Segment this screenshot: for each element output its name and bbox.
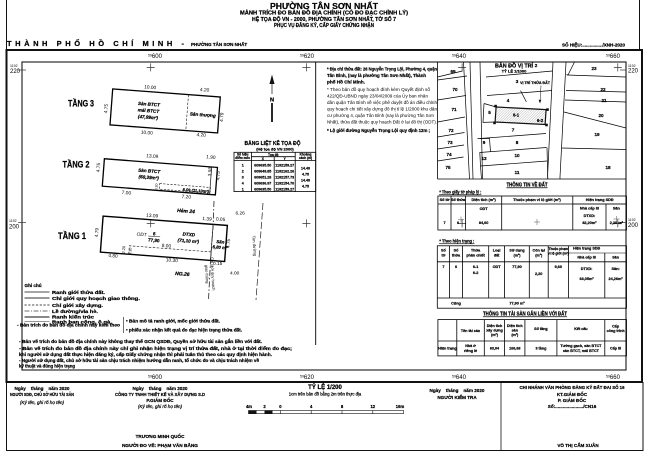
svg-text:Thuộc phạm: Thuộc phạm bbox=[548, 247, 568, 251]
svg-text:ODT: ODT bbox=[136, 232, 148, 239]
svg-text:7: 7 bbox=[442, 265, 444, 269]
svg-text:ODT: ODT bbox=[480, 207, 489, 211]
svg-text:609635.50: 609635.50 bbox=[254, 163, 271, 167]
svg-text:(m²): (m²) bbox=[511, 333, 519, 337]
svg-text:4.20: 4.20 bbox=[200, 87, 210, 94]
svg-text:7.00: 7.00 bbox=[122, 190, 132, 197]
svg-text:phố Hồ Chí Minh.: phố Hồ Chí Minh. bbox=[327, 79, 365, 85]
svg-text:6-2: 6-2 bbox=[537, 118, 544, 123]
svg-text:77,90: 77,90 bbox=[148, 237, 160, 243]
svg-text:DTXD:: DTXD: bbox=[581, 267, 593, 271]
svg-text:16m: 16m bbox=[396, 404, 405, 409]
svg-text:Hiện trạng SDĐ: Hiện trạng SDĐ bbox=[573, 247, 600, 251]
svg-text:* Theo giấy tờ pháp lý :: * Theo giấy tờ pháp lý : bbox=[439, 189, 481, 195]
svg-text:CÔNG TY TNHH THIẾT KẾ VÀ XÂY D: CÔNG TY TNHH THIẾT KẾ VÀ XÂY DỰNG S.D bbox=[115, 390, 206, 397]
svg-text:Diện tích: Diện tích bbox=[487, 324, 503, 328]
svg-text:- Bản vẽ trích đo bản đồ địa c: - Bản vẽ trích đo bản đồ địa chính này k… bbox=[19, 339, 262, 344]
svg-text:Lề đường/vỉa hè.: Lề đường/vỉa hè. bbox=[52, 309, 98, 314]
svg-text:Sử dụng: Sử dụng bbox=[509, 249, 524, 253]
svg-text:200: 200 bbox=[628, 223, 639, 229]
svg-text:63,05m²: 63,05m² bbox=[580, 277, 595, 281]
svg-text:VỊ TRÍ THỬA ĐẤT: VỊ TRÍ THỬA ĐẤT bbox=[520, 80, 551, 85]
svg-text:10.00: 10.00 bbox=[141, 130, 154, 137]
svg-text:73: 73 bbox=[447, 140, 453, 145]
svg-text:Thuộc phạm vi lộ giới (m²): Thuộc phạm vi lộ giới (m²) bbox=[513, 198, 561, 202]
svg-text:TẦNG 3: TẦNG 3 bbox=[68, 99, 94, 110]
svg-text:cư phường 4, quận Tân Bình (na: cư phường 4, quận Tân Bình (nay là phườn… bbox=[327, 113, 434, 118]
svg-text:7: 7 bbox=[512, 128, 515, 133]
svg-text:Diện tích: Diện tích bbox=[507, 324, 523, 328]
svg-text:TỶ LỆ 1/1000: TỶ LỆ 1/1000 bbox=[502, 69, 527, 74]
svg-text:(m²): (m²) bbox=[535, 254, 543, 258]
svg-text:4.20: 4.20 bbox=[196, 132, 206, 139]
svg-text:69: 69 bbox=[450, 69, 456, 74]
svg-text:Chỉ giới xây dựng.: Chỉ giới xây dựng. bbox=[52, 303, 103, 308]
svg-text:2: 2 bbox=[242, 169, 244, 173]
svg-text:Tọa độ: Tọa độ bbox=[268, 153, 278, 157]
svg-text:8: 8 bbox=[516, 140, 519, 145]
svg-text:- Bản trích đo bản đồ địa chín: - Bản trích đo bản đồ địa chính này kèm … bbox=[17, 323, 120, 328]
svg-text:- Bản vẽ trích đo bản đồ địa c: - Bản vẽ trích đo bản đồ địa chính này c… bbox=[19, 346, 293, 351]
svg-text:11: 11 bbox=[515, 170, 520, 175]
svg-text:* Địa chỉ thửa đất: 26 Nguyễn: * Địa chỉ thửa đất: 26 Nguyễn Trọng Lội,… bbox=[327, 66, 437, 72]
svg-text:14.49: 14.49 bbox=[301, 178, 310, 182]
svg-text:phân chiết: phân chiết bbox=[466, 254, 485, 258]
svg-text:Nhất), thửa đất thuộc quy hoạc: Nhất), thửa đất thuộc quy hoạch Đất ở lạ… bbox=[327, 119, 437, 125]
svg-text:NG.26: NG.26 bbox=[175, 271, 190, 278]
svg-text:* Theo bản đồ quy hoạch đính k: * Theo bản đồ quy hoạch đính kèm Quyết đ… bbox=[327, 87, 431, 92]
svg-text:(Ký tên, ghi rõ họ tên): (Ký tên, ghi rõ họ tên) bbox=[20, 400, 65, 405]
svg-text:10: 10 bbox=[514, 153, 520, 158]
svg-text:Cấp III: Cấp III bbox=[610, 347, 621, 351]
svg-text:3: 3 bbox=[516, 79, 519, 84]
svg-text:sàn BTCT, mái BTCT: sàn BTCT, mái BTCT bbox=[563, 349, 600, 353]
svg-text:Cấp: Cấp bbox=[612, 325, 620, 329]
svg-text:18: 18 bbox=[605, 165, 611, 170]
svg-text:2,20: 2,20 bbox=[535, 272, 542, 276]
svg-text:SỐ HIỆU:................/XNH-2: SỐ HIỆU:................/XNH-2020 bbox=[562, 41, 625, 48]
svg-text:Hiện trạng: Hiện trạng bbox=[438, 347, 456, 351]
svg-text:Nhà ở: Nhà ở bbox=[465, 344, 476, 348]
svg-text:82,20m²: 82,20m² bbox=[582, 221, 597, 225]
svg-text:sàn: sàn bbox=[512, 329, 519, 333]
svg-text:Thửa: Thửa bbox=[471, 249, 481, 253]
svg-text:Chỉ giới quy hoạch giao thông.: Chỉ giới quy hoạch giao thông. bbox=[52, 296, 140, 301]
svg-text:MẢNH TRÍCH ĐO BẢN ĐỒ ĐỊA CHÍNH: MẢNH TRÍCH ĐO BẢN ĐỒ ĐỊA CHÍNH (CÓ ĐO ĐẠ… bbox=[240, 9, 408, 17]
svg-text:3.98: 3.98 bbox=[207, 166, 214, 176]
svg-text:Sân:: Sân: bbox=[611, 267, 619, 271]
svg-text:7: 7 bbox=[443, 221, 445, 225]
svg-text:21: 21 bbox=[601, 98, 607, 103]
svg-text:609636.97: 609636.97 bbox=[254, 181, 271, 185]
svg-text:Sân: Sân bbox=[613, 207, 621, 211]
svg-text:Nhà cấp III: Nhà cấp III bbox=[577, 256, 595, 260]
svg-text:1: 1 bbox=[242, 187, 244, 191]
svg-text:THÔNG TIN TÀI SẢN GẮN LIỀN VỚI: THÔNG TIN TÀI SẢN GẮN LIỀN VỚI ĐẤT bbox=[483, 310, 567, 318]
svg-text:Tên tài sản: Tên tài sản bbox=[461, 329, 481, 333]
svg-text:khi người sử dụng đất thực hiệ: khi người sử dụng đất thực hiện đăng ký,… bbox=[19, 352, 272, 357]
svg-text:Cộng: Cộng bbox=[451, 302, 461, 306]
svg-text:2.20: 2.20 bbox=[121, 245, 127, 254]
svg-text:19: 19 bbox=[594, 132, 600, 137]
svg-text:8.00: 8.00 bbox=[162, 243, 172, 250]
svg-text:63,04: 63,04 bbox=[490, 347, 500, 351]
svg-text:PHỤC VỤ ĐĂNG KÝ, CẤP GIẤY CHỨN: PHỤC VỤ ĐĂNG KÝ, CẤP GIẤY CHỨNG NHẬN bbox=[274, 22, 374, 29]
svg-text:P. GIÁM ĐỐC: P. GIÁM ĐỐC bbox=[558, 397, 587, 403]
svg-text:• Bản mô tả ranh giới, mốc giớ: • Bản mô tả ranh giới, mốc giới thửa đất… bbox=[126, 319, 220, 324]
svg-text:14.49: 14.49 bbox=[301, 166, 310, 170]
svg-text:* Theo hiện trạng :: * Theo hiện trạng : bbox=[439, 239, 474, 244]
svg-text:4.75: 4.75 bbox=[302, 172, 309, 176]
svg-text:609635.50: 609635.50 bbox=[254, 187, 271, 191]
svg-text:3: 3 bbox=[242, 175, 244, 179]
svg-text:* Lộ giới đường Nguyễn Trọng L: * Lộ giới đường Nguyễn Trọng Lội quy địn… bbox=[327, 127, 430, 133]
svg-text:1192: 1192 bbox=[10, 64, 18, 68]
svg-text:5: 5 bbox=[488, 110, 491, 115]
svg-text:Sân: Sân bbox=[612, 256, 620, 260]
svg-text:Số tầng: Số tầng bbox=[534, 327, 548, 331]
svg-text:1192157.73: 1192157.73 bbox=[275, 175, 294, 179]
svg-text:công trình: công trình bbox=[607, 329, 626, 333]
svg-text:HỆ TỌA ĐỘ VN - 2000, PHƯỜNG TÂ: HỆ TỌA ĐỘ VN - 2000, PHƯỜNG TÂN SƠN NHẤT… bbox=[252, 15, 396, 23]
svg-text:1192162.26: 1192162.26 bbox=[275, 169, 294, 173]
svg-text:N: N bbox=[270, 98, 274, 104]
svg-text:Ngày tháng năm 2020: Ngày tháng năm 2020 bbox=[430, 388, 485, 393]
svg-text:23: 23 bbox=[591, 66, 597, 71]
svg-text:Tường gạch, sàn BTCT: Tường gạch, sàn BTCT bbox=[560, 344, 602, 348]
svg-text:6.26: 6.26 bbox=[236, 211, 246, 217]
svg-text:1192: 1192 bbox=[628, 64, 636, 68]
svg-text:cách (m): cách (m) bbox=[299, 156, 312, 160]
svg-text:vi lộ giới (m²): vi lộ giới (m²) bbox=[548, 252, 569, 256]
svg-text:ODT: ODT bbox=[493, 265, 502, 269]
svg-text:NGƯỜI KIỂM TRA: NGƯỜI KIỂM TRA bbox=[437, 393, 477, 400]
svg-text:4.80: 4.80 bbox=[108, 253, 118, 260]
svg-text:TRƯƠNG MINH QUỐC: TRƯƠNG MINH QUỐC bbox=[136, 433, 185, 439]
svg-text:VÕ THỊ CẨM XUÂN: VÕ THỊ CẨM XUÂN bbox=[557, 442, 599, 448]
svg-text:10.00: 10.00 bbox=[144, 84, 157, 91]
svg-text:1192159.27: 1192159.27 bbox=[275, 187, 294, 191]
svg-text:13.09: 13.09 bbox=[146, 213, 159, 220]
svg-text:PHƯỜNG TÂN SƠN NHẤT: PHƯỜNG TÂN SƠN NHẤT bbox=[191, 40, 247, 47]
svg-text:1192: 1192 bbox=[9, 219, 17, 223]
svg-text:4.00: 4.00 bbox=[230, 271, 240, 277]
svg-text:Tân Bình, (nay là phường Tân S: Tân Bình, (nay là phường Tân Sơn Nhất), … bbox=[327, 72, 426, 78]
svg-text:NGƯỜI ĐO VẼ: PHẠM VĂN BẰNG: NGƯỜI ĐO VẼ: PHẠM VĂN BẰNG bbox=[122, 441, 198, 448]
svg-text:9: 9 bbox=[483, 140, 486, 145]
svg-text:Số:....................../CN16: Số:....................../CN16 bbox=[548, 403, 597, 409]
svg-text:7.20: 7.20 bbox=[181, 194, 191, 201]
svg-text:75: 75 bbox=[445, 165, 451, 170]
svg-text:70: 70 bbox=[452, 87, 458, 92]
svg-text:166,68: 166,68 bbox=[509, 347, 520, 351]
svg-text:riêng lẻ: riêng lẻ bbox=[464, 349, 477, 353]
svg-text:3 tầng: 3 tầng bbox=[535, 347, 546, 351]
svg-text:77,90 m²: 77,90 m² bbox=[509, 302, 525, 306]
svg-text:4: 4 bbox=[242, 181, 244, 185]
svg-text:Số: Số bbox=[454, 249, 459, 253]
svg-text:Ghi chú: Ghi chú bbox=[25, 283, 42, 288]
svg-text:4.75: 4.75 bbox=[225, 238, 232, 248]
svg-text:• phiếu xác nhận kết quả đo đạ: • phiếu xác nhận kết quả đo đạc hiện trạ… bbox=[126, 328, 242, 333]
svg-text:10.30: 10.30 bbox=[166, 257, 179, 264]
svg-text:6-2: 6-2 bbox=[473, 271, 479, 275]
svg-text:Số: Số bbox=[441, 249, 446, 253]
svg-text:609649.85: 609649.85 bbox=[254, 169, 271, 173]
svg-text:Ngày tháng năm 2020: Ngày tháng năm 2020 bbox=[15, 386, 70, 391]
svg-text:đất: đất bbox=[494, 254, 500, 258]
svg-text:20: 20 bbox=[598, 113, 604, 118]
svg-text:NGƯỜI SDĐ, CHỦ SỞ HỮU TÀI SẢN: NGƯỜI SDĐ, CHỦ SỞ HỮU TÀI SẢN bbox=[10, 390, 75, 397]
svg-text:12: 12 bbox=[370, 404, 375, 409]
svg-text:điểm mốc: điểm mốc bbox=[235, 156, 250, 160]
svg-text:1.90: 1.90 bbox=[206, 154, 216, 161]
svg-text:22: 22 bbox=[600, 87, 606, 92]
svg-text:1: 1 bbox=[242, 163, 244, 167]
svg-text:9,60: 9,60 bbox=[555, 265, 562, 269]
svg-text:4.75: 4.75 bbox=[215, 171, 222, 181]
svg-text:6-1: 6-1 bbox=[513, 113, 520, 118]
svg-text:4.75: 4.75 bbox=[103, 103, 110, 113]
svg-text:77,90: 77,90 bbox=[512, 265, 522, 269]
svg-text:24,26m²: 24,26m² bbox=[609, 277, 624, 281]
svg-text:2: 2 bbox=[535, 63, 538, 68]
svg-text:Hiện trạng SDĐ: Hiện trạng SDĐ bbox=[586, 198, 614, 202]
svg-text:TỶ LỆ 1/200: TỶ LỆ 1/200 bbox=[308, 383, 342, 391]
svg-text:0.30: 0.30 bbox=[128, 248, 133, 255]
svg-text:4m: 4m bbox=[246, 404, 252, 409]
svg-text:DTXD: DTXD bbox=[182, 232, 196, 238]
svg-text:1.39: 1.39 bbox=[202, 216, 212, 223]
svg-text:4.75: 4.75 bbox=[95, 162, 102, 172]
svg-text:74: 74 bbox=[446, 152, 452, 157]
svg-text:1192154.70: 1192154.70 bbox=[275, 181, 294, 185]
svg-text:PHƯỜNG TÂN SƠN NHẤT: PHƯỜNG TÂN SƠN NHẤT bbox=[270, 0, 379, 11]
svg-text:KT.GIÁM ĐỐC: KT.GIÁM ĐỐC bbox=[557, 391, 588, 397]
svg-text:0.05: 0.05 bbox=[216, 216, 226, 223]
svg-text:kỹ thuật và đúng hiện trạng: kỹ thuật và đúng hiện trạng bbox=[19, 364, 75, 369]
svg-text:Diện tích (m²): Diện tích (m²) bbox=[471, 198, 496, 202]
svg-text:200: 200 bbox=[9, 225, 20, 231]
svg-text:(m²): (m²) bbox=[514, 254, 522, 258]
svg-text:tờ: tờ bbox=[441, 254, 445, 258]
svg-text:Số tờ: Số tờ bbox=[440, 198, 450, 202]
svg-text:609651.28: 609651.28 bbox=[254, 175, 271, 179]
svg-text:0.30: 0.30 bbox=[154, 183, 159, 190]
svg-text:Ngày tháng năm 2020: Ngày tháng năm 2020 bbox=[133, 386, 188, 391]
svg-text:THÔNG TIN VỀ ĐẤT: THÔNG TIN VỀ ĐẤT bbox=[507, 181, 549, 189]
svg-text:xây dựng: xây dựng bbox=[486, 329, 503, 333]
svg-text:CHI NHÁNH VĂN PHÒNG ĐĂNG KÝ ĐẤ: CHI NHÁNH VĂN PHÒNG ĐĂNG KÝ ĐẤT ĐAI SỐ 1… bbox=[520, 383, 625, 390]
svg-text:4.79: 4.79 bbox=[219, 112, 226, 122]
svg-text:6-1: 6-1 bbox=[473, 265, 479, 269]
svg-text:(Ký tên, ghi rõ họ tên): (Ký tên, ghi rõ họ tên) bbox=[138, 404, 183, 409]
svg-text:Kết cấu: Kết cấu bbox=[574, 327, 588, 331]
svg-text:6: 6 bbox=[455, 265, 457, 269]
svg-text:4.79: 4.79 bbox=[94, 227, 101, 237]
svg-text:72: 72 bbox=[448, 128, 454, 133]
svg-text:DTXD:: DTXD: bbox=[584, 214, 596, 218]
svg-text:- Người sử dụng đất, chủ sở hữ: - Người sử dụng đất, chủ sở hữu tài sản … bbox=[19, 358, 260, 363]
svg-text:dân quận Tân Bình về việc phê: dân quận Tân Bình về việc phê duyệt đồ á… bbox=[327, 99, 438, 105]
svg-text:13.09: 13.09 bbox=[146, 153, 159, 160]
svg-text:TẦNG 1: TẦNG 1 bbox=[58, 231, 87, 242]
svg-text:220: 220 bbox=[628, 69, 639, 75]
svg-text:(Hệ tọa độ VN 2000): (Hệ tọa độ VN 2000) bbox=[256, 147, 294, 152]
svg-text:4.75: 4.75 bbox=[302, 184, 309, 188]
svg-text:6: 6 bbox=[457, 221, 459, 225]
svg-text:Ranh giới thửa đất.: Ranh giới thửa đất. bbox=[52, 289, 105, 295]
svg-text:Còn lại: Còn lại bbox=[533, 249, 545, 253]
svg-text:1192: 1192 bbox=[628, 218, 636, 222]
svg-text:P.GIÁM ĐỐC: P.GIÁM ĐỐC bbox=[146, 397, 174, 403]
svg-text:TẦNG 2: TẦNG 2 bbox=[63, 160, 90, 171]
svg-text:84,60: 84,60 bbox=[479, 221, 489, 225]
svg-text:13: 13 bbox=[481, 156, 487, 161]
svg-text:1192159.27: 1192159.27 bbox=[275, 163, 294, 167]
svg-text:giao thông: giao thông bbox=[204, 265, 210, 284]
svg-text:Loại: Loại bbox=[493, 249, 501, 253]
svg-text:quy hoạch chi tiết xây dựng đô: quy hoạch chi tiết xây dựng đô thị tỉ lệ… bbox=[327, 106, 437, 112]
svg-text:422/QĐ-UBND ngày 23/04/2009 củ: 422/QĐ-UBND ngày 23/04/2009 của Ủy ban n… bbox=[327, 93, 428, 99]
svg-text:Số thửa: Số thửa bbox=[451, 198, 466, 202]
svg-text:thửa: thửa bbox=[452, 254, 461, 258]
svg-text:(m²): (m²) bbox=[491, 333, 499, 337]
svg-text:1cm trên bản đồ bằng 2m trên t: 1cm trên bản đồ bằng 2m trên thực địa bbox=[289, 392, 362, 397]
svg-text:71: 71 bbox=[451, 107, 457, 112]
svg-text:Nhà cấp III: Nhà cấp III bbox=[580, 207, 599, 211]
svg-text:4: 4 bbox=[507, 98, 510, 103]
